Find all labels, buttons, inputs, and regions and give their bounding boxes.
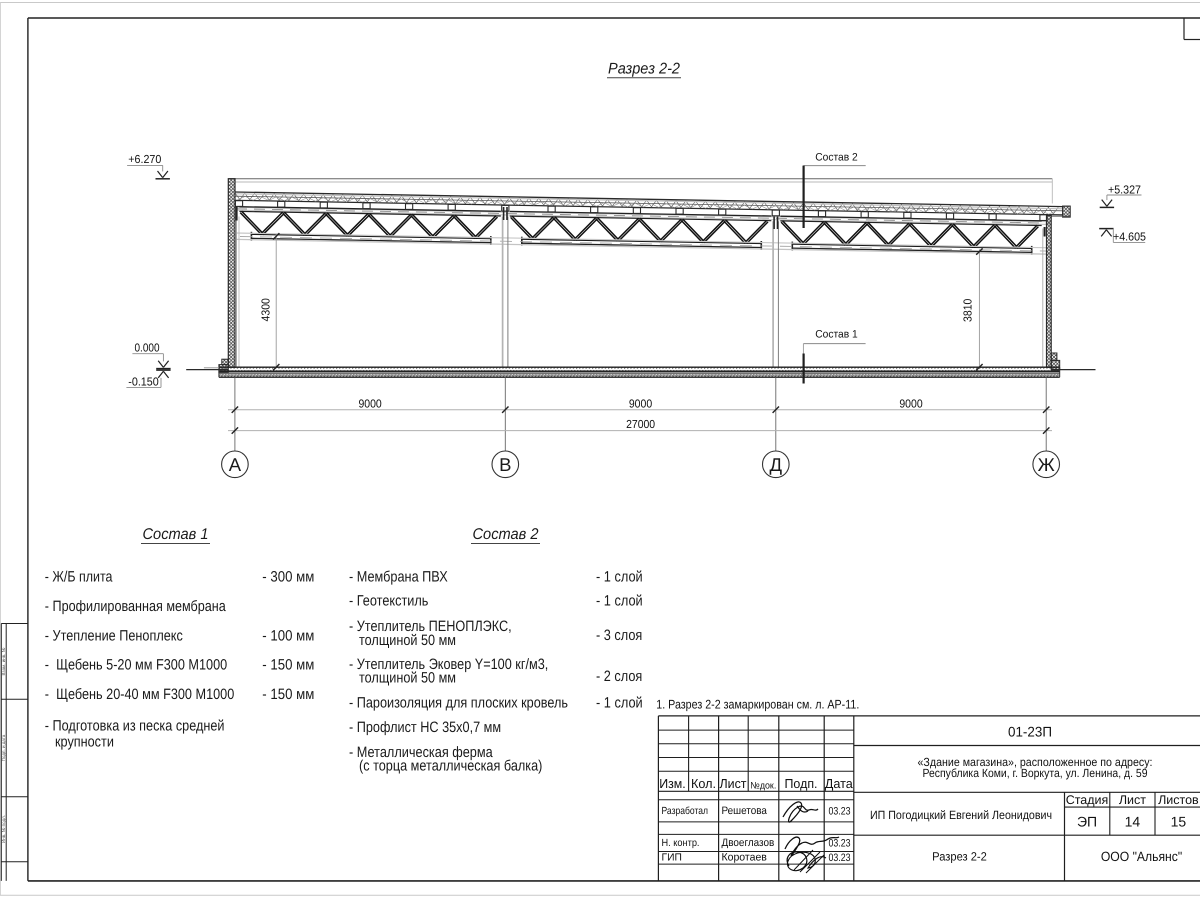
svg-text:Инв. № подл.: Инв. № подл. <box>1 815 6 843</box>
svg-text:Ж: Ж <box>1038 454 1055 475</box>
svg-text:1. Разрез 2-2 замаркирован см.: 1. Разрез 2-2 замаркирован см. л. АР-11. <box>656 698 859 712</box>
svg-text:- Геотекстиль: - Геотекстиль <box>349 593 429 610</box>
svg-text:- 1 слой: - 1 слой <box>596 593 643 610</box>
svg-text:15: 15 <box>1171 814 1187 830</box>
svg-text:4300: 4300 <box>260 298 273 321</box>
svg-text:- 1 слой: - 1 слой <box>596 569 643 586</box>
svg-text:Разрез 2-2: Разрез 2-2 <box>932 850 987 864</box>
svg-text:14: 14 <box>1125 814 1141 830</box>
svg-text:- Профилированная мембрана: - Профилированная мембрана <box>45 598 227 615</box>
svg-text:(с торца металлическая балка): (с торца металлическая балка) <box>359 758 542 775</box>
svg-text:- Мембрана ПВХ: - Мембрана ПВХ <box>349 569 448 586</box>
svg-text:Решетова: Решетова <box>722 805 767 817</box>
svg-text:Взам. инв. №: Взам. инв. № <box>1 647 6 675</box>
svg-text:- 3 слоя: - 3 слоя <box>596 627 642 644</box>
svg-text:Подп.: Подп. <box>785 776 818 791</box>
svg-text:27000: 27000 <box>626 418 655 431</box>
svg-text:01-23П: 01-23П <box>1008 724 1052 740</box>
svg-text:0.000: 0.000 <box>135 341 160 354</box>
svg-text:+6.270: +6.270 <box>128 153 161 166</box>
svg-text:ЭП: ЭП <box>1077 814 1097 830</box>
svg-text:- Пароизоляция для плоских кро: - Пароизоляция для плоских кровель <box>349 695 568 712</box>
svg-text:- Профлист НС 35х0,7 мм: - Профлист НС 35х0,7 мм <box>349 719 501 736</box>
svg-text:Состав 2: Состав 2 <box>815 152 858 164</box>
svg-text:9000: 9000 <box>629 397 652 410</box>
svg-text:№док.: №док. <box>750 781 776 792</box>
svg-text:Разрез 2-2: Разрез 2-2 <box>608 61 680 78</box>
svg-text:Состав 2: Состав 2 <box>473 526 539 543</box>
svg-text:- 1 слой: - 1 слой <box>596 695 643 712</box>
svg-text:- Подготовка из песка средней: - Подготовка из песка средней <box>45 718 225 735</box>
svg-text:Состав 1: Состав 1 <box>143 526 209 543</box>
svg-text:3810: 3810 <box>962 299 975 322</box>
svg-text:Листов: Листов <box>1158 793 1199 807</box>
svg-text:- Щебень 20-40 мм F300 М1000: - Щебень 20-40 мм F300 М1000 <box>45 686 235 703</box>
svg-text:- Утепление Пеноплекс: - Утепление Пеноплекс <box>45 628 183 645</box>
svg-text:Состав 1: Состав 1 <box>815 329 858 341</box>
svg-text:В: В <box>499 454 511 475</box>
svg-text:Лист: Лист <box>1119 793 1146 807</box>
svg-text:03.23: 03.23 <box>829 838 851 850</box>
svg-text:9000: 9000 <box>358 397 381 410</box>
svg-text:03.23: 03.23 <box>829 852 851 864</box>
svg-text:Изм.: Изм. <box>659 776 686 791</box>
svg-text:Д: Д <box>770 454 783 475</box>
svg-text:- Щебень 5-20 мм F300 М1000: - Щебень 5-20 мм F300 М1000 <box>45 657 227 674</box>
svg-text:- 300 мм: - 300 мм <box>262 569 314 586</box>
svg-text:- 150 мм: - 150 мм <box>262 686 314 703</box>
svg-text:крупности: крупности <box>55 734 114 751</box>
svg-text:Стадия: Стадия <box>1066 793 1109 807</box>
svg-text:- 2 слоя: - 2 слоя <box>596 668 642 685</box>
svg-text:ООО "Альянс": ООО "Альянс" <box>1101 849 1182 864</box>
svg-text:Кол.: Кол. <box>691 776 716 791</box>
svg-text:Республика Коми, г. Воркута, у: Республика Коми, г. Воркута, ул. Ленина,… <box>923 766 1148 780</box>
svg-text:+5.327: +5.327 <box>1108 183 1141 196</box>
svg-text:толщиной 50 мм: толщиной 50 мм <box>359 670 456 687</box>
svg-text:толщиной 50 мм: толщиной 50 мм <box>359 632 456 649</box>
svg-text:ИП Погодицкий Евгений Леонидов: ИП Погодицкий Евгений Леонидович <box>870 808 1052 822</box>
svg-text:- Ж/Б плита: - Ж/Б плита <box>45 569 113 586</box>
svg-text:Двоеглазов: Двоеглазов <box>722 837 775 849</box>
svg-text:Лист: Лист <box>720 776 747 791</box>
svg-text:Дата: Дата <box>825 776 854 791</box>
svg-text:Подп. и дата: Подп. и дата <box>1 734 6 761</box>
svg-text:Разработал: Разработал <box>662 806 709 817</box>
svg-text:03.23: 03.23 <box>829 806 851 818</box>
svg-text:ГИП: ГИП <box>662 853 682 864</box>
svg-text:- 150 мм: - 150 мм <box>262 657 314 674</box>
svg-text:А: А <box>229 454 242 475</box>
svg-text:Н. контр.: Н. контр. <box>662 838 700 849</box>
svg-text:-0.150: -0.150 <box>128 376 159 389</box>
svg-text:Коротаев: Коротаев <box>722 852 768 864</box>
svg-text:+4.605: +4.605 <box>1113 231 1146 244</box>
svg-text:9000: 9000 <box>899 397 922 410</box>
svg-text:- 100 мм: - 100 мм <box>262 628 314 645</box>
